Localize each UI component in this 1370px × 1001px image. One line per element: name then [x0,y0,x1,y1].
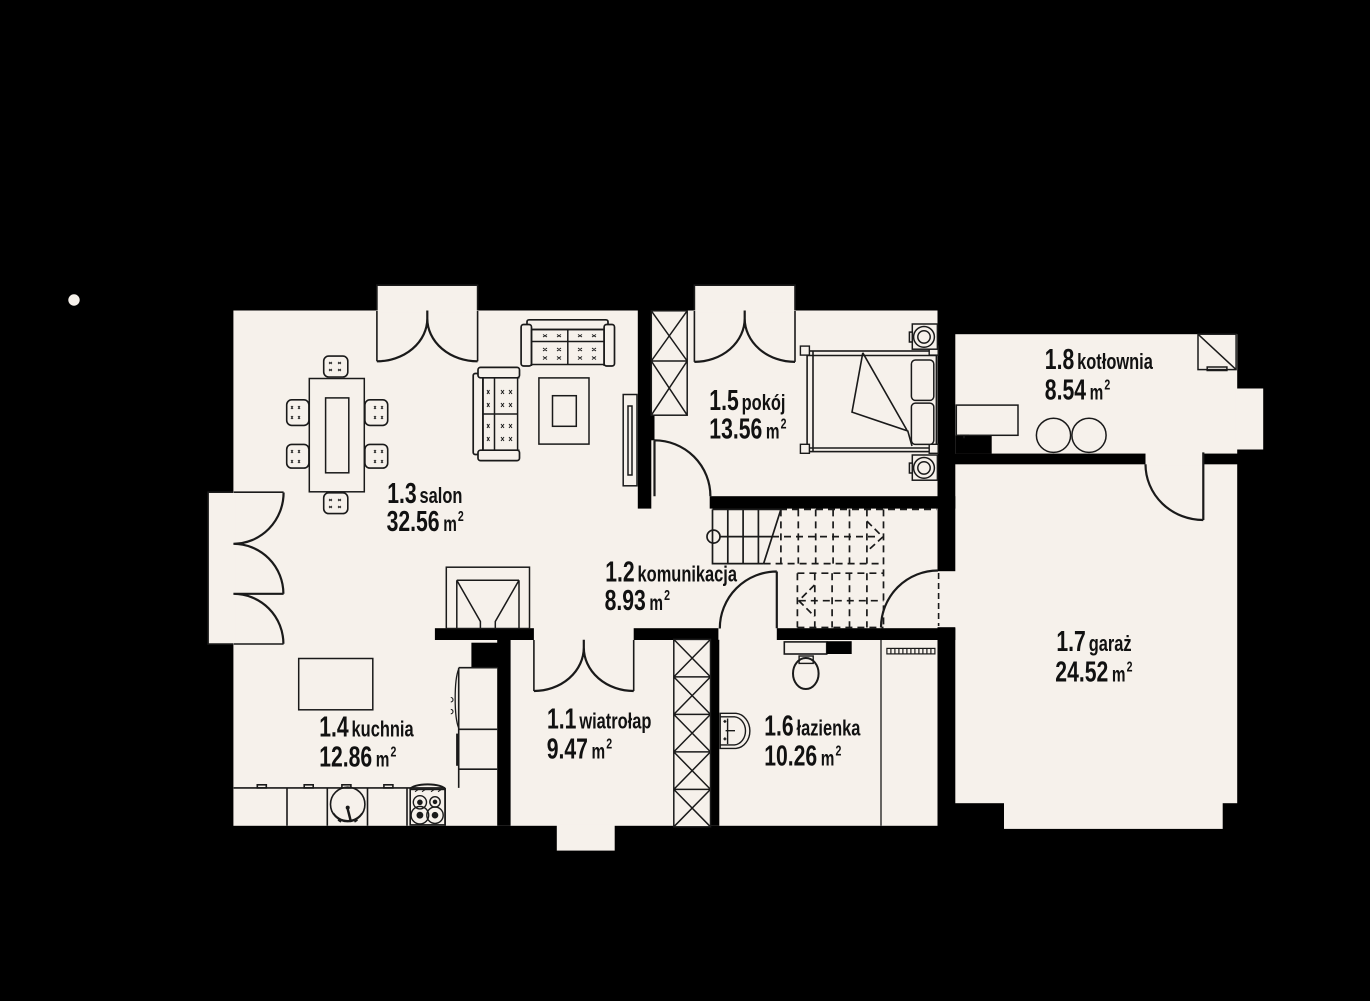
svg-text:24.52m2: 24.52m2 [1055,656,1132,688]
svg-text:12.86m2: 12.86m2 [319,741,396,773]
svg-text:8.93m2: 8.93m2 [605,585,670,617]
svg-text:32.56m2: 32.56m2 [387,506,464,538]
svg-text:10.26m2: 10.26m2 [764,740,841,772]
svg-text:1.4kuchnia: 1.4kuchnia [319,712,414,744]
svg-text:1.1wiatrołap: 1.1wiatrołap [547,703,651,735]
svg-text:8.54m2: 8.54m2 [1045,375,1110,407]
svg-text:1.8kotłownia: 1.8kotłownia [1045,344,1154,376]
svg-text:1.2komunikacja: 1.2komunikacja [605,556,738,588]
svg-text:1.7garaż: 1.7garaż [1056,626,1131,658]
svg-text:9.47m2: 9.47m2 [547,734,612,766]
svg-text:1.5pokój: 1.5pokój [709,385,785,417]
svg-text:1.6łazienka: 1.6łazienka [764,711,861,743]
svg-text:1.3salon: 1.3salon [387,478,462,510]
svg-text:13.56m2: 13.56m2 [709,414,786,446]
